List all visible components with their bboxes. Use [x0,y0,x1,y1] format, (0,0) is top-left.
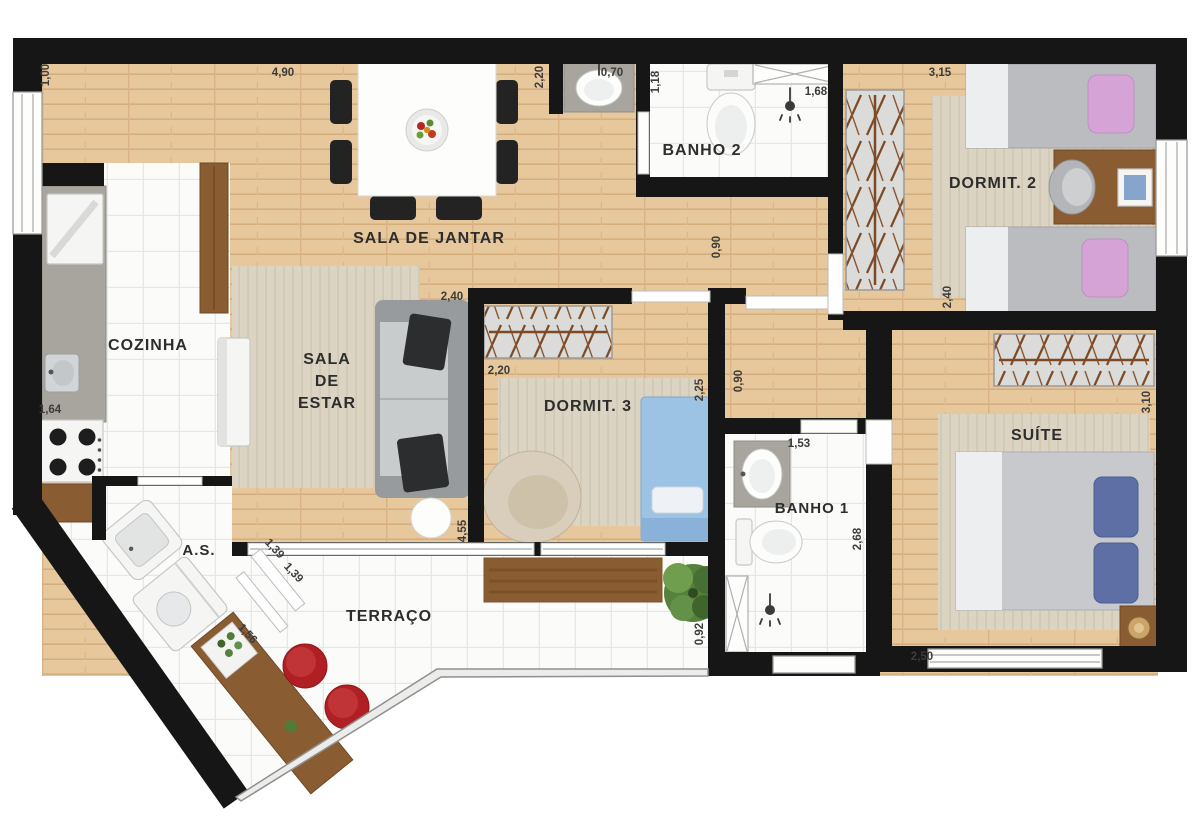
floor-plan-svg: SALA DE JANTAR COZINHA SALA DE ESTAR BAN… [0,0,1200,840]
floor-plan: SALA DE JANTAR COZINHA SALA DE ESTAR BAN… [0,0,1200,840]
side-table [411,498,451,538]
dim-1-00: 1,00 [40,64,52,86]
wall-bath2-bottom [650,177,843,197]
door-bath1 [801,420,857,433]
sofa-cushion [402,313,452,371]
dim-3-15: 3,15 [929,67,952,79]
pillow-blue [1094,477,1138,537]
dim-0-92: 0,92 [694,623,706,645]
dim-2-68: 2,68 [852,527,864,550]
bath1-label: BANHO 1 [775,500,850,517]
living-label-2: DE [315,373,339,390]
dim-2-50: 2,50 [911,651,933,663]
door-bath2 [638,112,649,174]
bedroom2-label: DORMIT. 2 [949,175,1037,192]
dim-1-64: 1,64 [39,404,62,416]
suite-label: SUÍTE [1011,425,1063,444]
dim-4-55: 4,55 [457,519,469,542]
window-bath1 [773,656,855,673]
dim-2-20a: 2,20 [534,66,546,88]
wall-top [15,38,1185,64]
bath2-label: BANHO 2 [662,142,741,159]
door-bedroom3 [632,291,710,302]
dining-set [330,62,518,220]
dining-chair [436,196,482,220]
dim-1-68: 1,68 [805,86,828,98]
dining-chair [370,196,416,220]
dim-2-25: 2,25 [694,378,706,401]
pillow-pink [1082,239,1128,297]
wall-bedroom2-bottom [843,311,1156,330]
dim-2-20b: 2,20 [488,365,510,377]
service-label: A.S. [182,542,215,559]
door-suite [866,420,892,464]
dim-1-53: 1,53 [788,438,810,450]
door-bedroom2 [828,254,843,314]
dim-0-70: 0,70 [601,67,623,79]
wall-bedroom3-left [468,288,484,556]
dim-2-40b: 2,40 [441,291,463,303]
window-kitchen-left [13,92,42,234]
wall-bedroom3-right [708,288,725,676]
door-kitchen-service [138,477,202,485]
pillow-pink [1088,75,1134,133]
terrace-label: TERRAÇO [346,608,432,625]
entry-door-leaf [746,296,828,309]
dim-0-90a: 0,90 [711,236,723,258]
kitchen-label: COZINHA [108,337,188,354]
pillow-blue [1094,543,1138,603]
dining-chair [496,140,518,184]
dim-3-10: 3,10 [1141,391,1153,413]
dim-1-18: 1,18 [650,70,662,93]
stove [41,420,103,482]
window-suite [928,649,1102,668]
pillow-white [652,487,703,513]
sofa-cushion [396,433,449,493]
dining-chair [330,80,352,124]
bedroom3-label: DORMIT. 3 [544,398,632,415]
dim-0-90b: 0,90 [733,370,745,392]
dim-2-40a: 2,40 [942,286,954,308]
window-bedroom2 [1156,140,1187,256]
wall-sink-nook [549,62,563,114]
dining-label: SALA DE JANTAR [353,230,505,247]
living-label-1: SALA [303,351,351,368]
wall-bedroom3-top [468,288,632,304]
dim-4-90: 4,90 [272,67,294,79]
living-label-3: ESTAR [298,395,356,412]
wall-right [1156,38,1187,672]
dining-chair [496,80,518,124]
wall-suite-left [866,330,892,672]
dining-chair [330,140,352,184]
wall-kitchen-stub [42,163,104,186]
